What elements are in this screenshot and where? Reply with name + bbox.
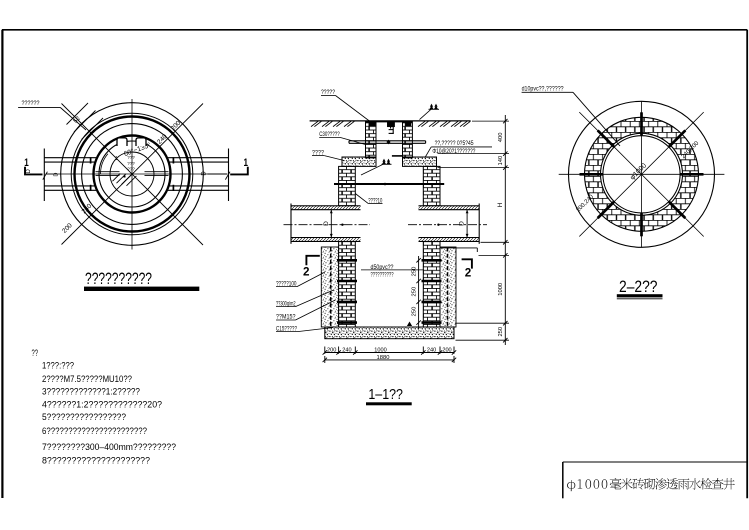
- svg-text:8?????????????????????: 8?????????????????????: [42, 455, 150, 465]
- svg-text:??,????? 0?5?45: ??,????? 0?5?45: [435, 141, 475, 147]
- svg-text:250: 250: [411, 307, 417, 317]
- svg-text:1880: 1880: [377, 355, 390, 361]
- svg-text:??: ??: [32, 348, 39, 359]
- svg-text:250: 250: [411, 267, 417, 277]
- svg-text:C30?????: C30?????: [319, 131, 340, 138]
- svg-text:1: 1: [24, 157, 29, 169]
- svg-text:D: D: [202, 171, 208, 176]
- svg-text:???: ???: [127, 155, 135, 160]
- svg-text:5?????????????????: 5?????????????????: [42, 412, 126, 422]
- svg-text:2: 2: [303, 265, 310, 279]
- svg-text:250: 250: [498, 327, 504, 337]
- svg-text:D: D: [323, 221, 330, 226]
- svg-text:2: 2: [465, 266, 472, 280]
- svg-text:7????????300–400mm?????????: 7????????300–400mm?????????: [42, 442, 176, 452]
- svg-text:D: D: [54, 173, 60, 177]
- svg-text:240: 240: [427, 347, 436, 353]
- svg-text:250: 250: [411, 287, 417, 297]
- svg-text:400: 400: [498, 133, 504, 143]
- svg-text:??????????: ??????????: [85, 269, 152, 288]
- svg-text:2????M7.5?????MU10??: 2????M7.5?????MU10??: [42, 374, 132, 384]
- svg-text:??????????: ??????????: [371, 272, 394, 278]
- svg-text:d10pvc??,??????: d10pvc??,??????: [522, 87, 565, 93]
- svg-text:3?????????????1:2?????: 3?????????????1:2?????: [42, 387, 140, 397]
- svg-text:1: 1: [115, 156, 118, 162]
- svg-text:1: 1: [244, 157, 249, 169]
- svg-text:1???:???: 1???:???: [42, 361, 74, 371]
- svg-text:240: 240: [342, 347, 351, 353]
- svg-text:1000: 1000: [374, 347, 386, 353]
- svg-text:6???????????????????????: 6???????????????????????: [42, 426, 147, 436]
- svg-text:140: 140: [498, 156, 504, 166]
- svg-text:2–2??: 2–2??: [619, 278, 658, 296]
- svg-text:200: 200: [442, 347, 451, 353]
- svg-text:D: D: [26, 168, 32, 173]
- svg-text:?????: ?????: [321, 89, 335, 96]
- svg-text:???: ???: [127, 161, 135, 166]
- svg-text:Φ10@20?1???????: Φ10@20?1???????: [432, 149, 476, 155]
- svg-text:4??????1:2????????????20?: 4??????1:2????????????20?: [42, 400, 162, 410]
- svg-text:D: D: [458, 221, 465, 226]
- svg-text:???: ???: [127, 167, 135, 172]
- svg-text:1000: 1000: [498, 283, 504, 296]
- svg-text:H: H: [497, 203, 504, 207]
- svg-text:1–1??: 1–1??: [368, 386, 403, 403]
- svg-text:200: 200: [327, 347, 336, 353]
- svg-text:??????: ??????: [22, 100, 40, 107]
